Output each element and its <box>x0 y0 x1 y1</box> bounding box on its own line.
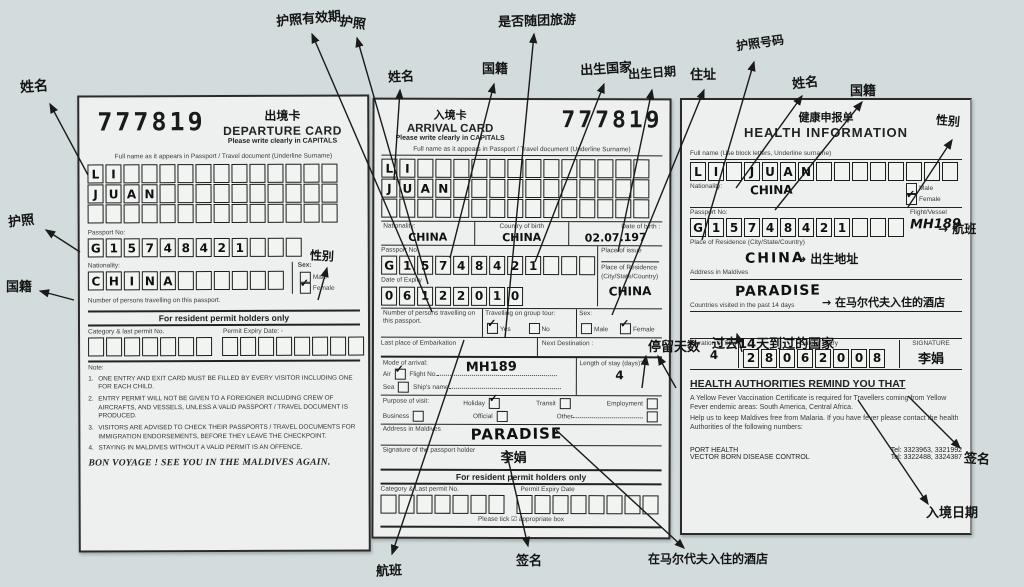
char-box: 1 <box>232 238 248 257</box>
arrival-passport-row: G15748421 <box>381 256 597 276</box>
char-box <box>453 159 469 178</box>
annotation-signature-right: 签名 <box>963 447 990 468</box>
char-box <box>303 164 319 183</box>
departure-name-row2: JUAN <box>88 184 360 204</box>
health-passport-row: G15748421 <box>690 218 906 237</box>
char-box <box>232 184 248 203</box>
char-box: 1 <box>106 239 122 258</box>
char-box: 1 <box>417 286 433 305</box>
char-box <box>268 204 284 223</box>
char-box: N <box>435 179 451 198</box>
arrival-group-tour-label: Travelling on group tour: <box>485 309 574 317</box>
arrival-purpose-label: Purpose of visit: <box>383 397 429 408</box>
char-box <box>870 162 886 181</box>
arrival-card: 入境卡 ARRIVAL CARD Please write clearly in… <box>371 98 671 540</box>
health-card: 健康申报单 HEALTH INFORMATION Full name (Use … <box>680 98 972 535</box>
arrival-birth-date-value: 02.07.197 <box>571 231 660 245</box>
char-box: I <box>399 159 415 178</box>
char-box <box>525 199 541 218</box>
char-box <box>196 184 212 203</box>
char-box <box>489 179 505 198</box>
char-box: 1 <box>834 218 850 237</box>
char-box <box>398 495 414 514</box>
char-box <box>543 256 559 275</box>
char-box <box>507 199 523 218</box>
arrival-next-destination-label: Next Destination : <box>537 338 662 356</box>
char-box <box>588 495 604 514</box>
arrival-business-checkbox <box>413 410 424 421</box>
char-box <box>525 179 541 198</box>
departure-card: 777819 出境卡 DEPARTURE CARD Please write c… <box>77 94 371 552</box>
char-box: 5 <box>124 239 140 258</box>
char-box: G <box>88 239 104 258</box>
departure-permit-expiry-label: Permit Expiry Date: - <box>223 327 283 335</box>
char-box <box>348 336 364 355</box>
char-box <box>268 184 284 203</box>
char-box <box>178 204 194 223</box>
char-box <box>381 199 397 218</box>
arrival-place-issue-label: Place of issue <box>601 247 659 262</box>
char-box <box>304 184 320 203</box>
arrival-permit-expiry-row <box>516 495 660 514</box>
annotation-passport-departure: 护照 <box>7 209 35 231</box>
health-fullname-label: Full name (Use block letters, Underline … <box>690 150 962 160</box>
char-box <box>942 162 958 181</box>
char-box <box>543 179 559 198</box>
arrival-sex-label: Sex: <box>579 310 660 318</box>
char-box <box>294 336 310 355</box>
char-box <box>178 337 194 356</box>
char-box <box>178 271 194 290</box>
char-box <box>142 337 158 356</box>
char-box <box>525 159 541 178</box>
arrival-sea-checkbox <box>398 381 409 392</box>
health-tel2: Tel: 3322488, 3324387 <box>891 454 962 461</box>
arrival-flight-value: MH189 <box>466 359 517 375</box>
departure-passport-label: Passport No: <box>88 229 360 238</box>
char-box: J <box>88 185 104 204</box>
departure-category-label: Category & last permit No. <box>88 328 223 337</box>
health-nationality-value: CHINA <box>750 183 793 198</box>
arrival-resident-header: For resident permit holders only <box>381 468 662 485</box>
char-box <box>222 337 238 356</box>
departure-category-row <box>88 337 214 356</box>
char-box: H <box>106 272 122 291</box>
char-box <box>597 179 613 198</box>
char-box <box>106 337 122 356</box>
departure-persons-label: Number of persons travelling on this pas… <box>88 297 360 306</box>
annotation-nationality-arrival: 国籍 <box>482 58 508 77</box>
char-box <box>196 204 212 223</box>
arrival-expiry-label: Date of Expiry <box>381 277 597 286</box>
annotation-countries-14: 过去14天到过的国家 <box>712 333 834 352</box>
arrival-transit-checkbox <box>560 398 571 409</box>
char-box <box>286 184 302 203</box>
char-box <box>816 162 832 181</box>
char-box: 1 <box>399 256 415 275</box>
char-box: 0 <box>381 286 397 305</box>
char-box <box>322 184 338 203</box>
annotation-group-tour: 是否随团旅游 <box>498 9 577 31</box>
departure-title: DEPARTURE CARD <box>206 124 360 139</box>
annotation-sex-health: 性别 <box>935 111 960 130</box>
char-box <box>250 204 266 223</box>
char-box <box>304 204 320 223</box>
annotation-name-departure: 姓名 <box>19 75 48 97</box>
char-box: I <box>105 164 121 183</box>
departure-subtitle: Please write clearly in CAPITALS <box>206 138 360 146</box>
char-box: 8 <box>780 218 796 237</box>
char-box <box>417 159 433 178</box>
char-box <box>906 162 922 181</box>
health-address-label: Address in Maldives <box>690 269 962 279</box>
char-box <box>177 164 193 183</box>
annotation-sex-departure: 性别 <box>310 246 335 264</box>
char-box <box>250 238 266 257</box>
char-box: 1 <box>525 256 541 275</box>
health-signature-label: SIGNATURE <box>900 340 962 348</box>
char-box <box>267 164 283 183</box>
health-nationality-label: Nationality: <box>690 183 904 191</box>
arrival-name-row2: JUAN <box>381 179 662 199</box>
char-box <box>470 495 486 514</box>
char-box <box>312 336 328 355</box>
char-box <box>452 495 468 514</box>
char-box <box>870 218 886 237</box>
departure-serial-number: 777819 <box>97 107 205 136</box>
departure-female-checkbox: ✓ <box>300 283 311 294</box>
health-tel1: Tel: 3323963, 3321992 <box>891 447 962 454</box>
char-box: 4 <box>798 218 814 237</box>
departure-note-2: 2.ENTRY PERMIT WILL NOT BE GIVEN TO A FO… <box>88 395 360 422</box>
char-box: I <box>708 162 724 181</box>
arrival-category-row <box>380 495 506 514</box>
arrival-title-cn: 入境卡 <box>396 107 505 123</box>
char-box: 2 <box>214 238 230 257</box>
char-box: L <box>381 159 397 178</box>
char-box: U <box>106 184 122 203</box>
health-remind-title: HEALTH AUTHORITIES REMIND YOU THAT <box>690 378 962 390</box>
char-box: 4 <box>196 238 212 257</box>
arrival-embarkation-label: Last place of Embarkation <box>381 337 537 355</box>
char-box: A <box>780 162 796 181</box>
char-box: 0 <box>851 349 867 368</box>
char-box <box>579 159 595 178</box>
char-box: 0 <box>833 349 849 368</box>
char-box: 4 <box>762 218 778 237</box>
departure-fullname-label: Full name as it appears in Passport / Tr… <box>87 153 359 162</box>
arrival-nationality-value: CHINA <box>383 230 472 244</box>
char-box <box>268 238 284 257</box>
char-box: 1 <box>708 218 724 237</box>
char-box <box>507 179 523 198</box>
char-box: 1 <box>489 286 505 305</box>
departure-name-row1: LI <box>87 164 359 184</box>
char-box: 5 <box>417 256 433 275</box>
char-box: 4 <box>160 238 176 257</box>
char-box <box>250 184 266 203</box>
char-box <box>471 199 487 218</box>
char-box <box>852 162 868 181</box>
arrival-group-yes-checkbox: ✓ <box>487 323 498 334</box>
char-box <box>633 199 649 218</box>
char-box <box>435 159 451 178</box>
char-box: G <box>381 256 397 275</box>
departure-male-label: Male <box>313 274 327 281</box>
annotation-signature-bottom: 签名 <box>516 550 542 569</box>
health-port-health: PORT HEALTH <box>690 447 891 454</box>
char-box <box>924 162 940 181</box>
char-box <box>159 164 175 183</box>
char-box <box>453 199 469 218</box>
annotation-entry-date: 入境日期 <box>926 502 978 521</box>
char-box: A <box>417 179 433 198</box>
char-box <box>285 164 301 183</box>
departure-nationality-row: CHINA <box>88 271 292 291</box>
char-box <box>196 337 212 356</box>
arrival-permit-expiry-label: Permit Expiry Date <box>521 486 575 494</box>
char-box <box>488 495 504 514</box>
char-box: 7 <box>142 238 158 257</box>
arrival-stay-value: 4 <box>579 367 659 382</box>
departure-farewell: BON VOYAGE ! SEE YOU IN THE MALDIVES AGA… <box>88 457 360 468</box>
char-box <box>142 204 158 223</box>
departure-resident-header: For resident permit holders only <box>88 309 360 326</box>
char-box <box>561 179 577 198</box>
health-vector-control: VECTOR BORN DISEASE CONTROL <box>690 454 891 461</box>
char-box <box>417 199 433 218</box>
char-box: N <box>142 272 158 291</box>
arrival-title: ARRIVAL CARD <box>395 123 504 135</box>
departure-note-1: 1.ONE ENTRY AND EXIT CARD MUST BE FILLED… <box>88 374 360 392</box>
char-box <box>570 495 586 514</box>
char-box: 4 <box>453 256 469 275</box>
char-box <box>579 179 595 198</box>
char-box <box>214 184 230 203</box>
departure-permit-expiry-row <box>222 336 366 356</box>
annotation-name-health: 姓名 <box>791 71 819 93</box>
char-box <box>88 205 104 224</box>
char-box <box>561 159 577 178</box>
char-box <box>286 238 302 257</box>
char-box <box>516 495 532 514</box>
char-box: 2 <box>507 256 523 275</box>
char-box <box>196 271 212 290</box>
char-box <box>141 164 157 183</box>
char-box <box>471 179 487 198</box>
char-box <box>380 495 396 514</box>
arrival-other-checkbox <box>647 411 658 422</box>
arrival-address-value: PARADISE <box>471 424 563 443</box>
char-box: C <box>88 272 104 291</box>
health-residence-label: Place of Residence (City/State/Country) <box>690 239 962 247</box>
departure-title-cn: 出境卡 <box>206 107 360 125</box>
char-box <box>633 179 649 198</box>
departure-nationality-label: Nationality: <box>88 262 292 271</box>
char-box: G <box>690 218 706 237</box>
arrival-male-checkbox <box>581 324 592 335</box>
scanned-immigration-forms: 777819 出境卡 DEPARTURE CARD Please write c… <box>0 0 1024 587</box>
arrival-passport-label: Passport No: <box>381 247 597 256</box>
annotation-passport-expiry: 护照有效期 <box>275 5 341 30</box>
char-box <box>726 162 742 181</box>
char-box <box>579 199 595 218</box>
annotation-stay-days: 停留天数 <box>648 336 700 355</box>
departure-note-3: 3.VISITORS ARE ADVISED TO CHECK THEIR PA… <box>88 423 360 441</box>
char-box: J <box>381 179 397 198</box>
char-box: 8 <box>178 238 194 257</box>
annotation-passport-top: 护照 <box>339 10 367 32</box>
arrival-air-checkbox: ✓ <box>395 368 406 379</box>
char-box <box>321 164 337 183</box>
char-box <box>240 337 256 356</box>
char-box <box>160 204 176 223</box>
char-box <box>178 184 194 203</box>
char-box: 5 <box>726 218 742 237</box>
char-box <box>214 204 230 223</box>
arrival-expiry-row: 06122010 <box>381 286 597 306</box>
char-box <box>160 184 176 203</box>
char-box: 8 <box>471 256 487 275</box>
char-box <box>232 204 248 223</box>
char-box: J <box>744 162 760 181</box>
arrival-persons-label: Number of persons travelling on this pas… <box>381 308 482 336</box>
annotation-address: 住址 <box>690 64 716 83</box>
char-box <box>543 159 559 178</box>
char-box <box>195 164 211 183</box>
arrival-category-label: Category & Last permit No. <box>381 485 521 493</box>
char-box <box>399 199 415 218</box>
char-box <box>249 164 265 183</box>
char-box <box>214 271 230 290</box>
arrival-residence-value: CHINA <box>601 283 659 298</box>
annotation-hotel-arrow: → 在马尔代夫入住的酒店 <box>822 294 945 310</box>
char-box <box>597 159 613 178</box>
annotation-passport-no: 护照号码 <box>735 31 785 55</box>
char-box <box>453 179 469 198</box>
char-box <box>322 204 338 223</box>
char-box <box>434 495 450 514</box>
annotation-nationality-health: 国籍 <box>850 80 876 99</box>
char-box <box>615 199 631 218</box>
arrival-official-checkbox <box>497 411 508 422</box>
arrival-birth-country-value: CHINA <box>477 231 566 245</box>
char-box <box>624 495 640 514</box>
health-title-cn: 健康申报单 <box>690 109 962 125</box>
annotation-flight-bottom: 航班 <box>376 559 403 579</box>
char-box <box>561 199 577 218</box>
arrival-tick-note: Please tick ☑ appropriate box <box>380 516 661 529</box>
annotation-birth-address-arrow: → 出生地址 <box>796 250 858 267</box>
health-remind-p1: A Yellow Fever Vaccination Certificate i… <box>690 395 962 413</box>
annotation-birth-date: 出生日期 <box>627 62 676 82</box>
annotation-flight-arrow: → 航班 <box>938 220 976 237</box>
char-box <box>615 179 631 198</box>
char-box <box>268 271 284 290</box>
departure-note-label: Note: <box>88 363 360 372</box>
arrival-name-row1: LI <box>381 159 662 179</box>
health-female-checkbox: ✓ <box>906 194 917 205</box>
char-box: A <box>124 184 140 203</box>
arrival-holiday-checkbox: ✓ <box>489 398 500 409</box>
char-box <box>552 495 568 514</box>
char-box <box>276 336 292 355</box>
char-box <box>435 199 451 218</box>
char-box: I <box>124 272 140 291</box>
arrival-group-no-checkbox <box>528 323 539 334</box>
departure-female-label: Female <box>313 285 335 292</box>
char-box: 6 <box>399 286 415 305</box>
char-box <box>231 164 247 183</box>
char-box: N <box>142 184 158 203</box>
char-box <box>633 159 649 178</box>
health-remind-p2: Help us to keep Maldives free from Malar… <box>690 415 962 433</box>
char-box <box>507 159 523 178</box>
char-box <box>213 164 229 183</box>
arrival-employment-checkbox <box>647 398 658 409</box>
char-box <box>106 204 122 223</box>
char-box: N <box>798 162 814 181</box>
char-box: 7 <box>435 256 451 275</box>
char-box <box>471 159 487 178</box>
arrival-signature-value: 李娟 <box>500 447 526 466</box>
health-passport-label: Passport No: <box>690 209 906 217</box>
char-box <box>160 337 176 356</box>
char-box <box>642 495 658 514</box>
char-box <box>286 204 302 223</box>
char-box <box>330 336 346 355</box>
char-box <box>489 199 505 218</box>
arrival-fullname-label: Full name as it appears in Passport / Tr… <box>381 146 662 157</box>
char-box <box>416 495 432 514</box>
char-box <box>124 337 140 356</box>
char-box <box>606 495 622 514</box>
char-box <box>561 256 577 275</box>
char-box <box>232 271 248 290</box>
arrival-female-checkbox: ✓ <box>620 324 631 335</box>
char-box: U <box>762 162 778 181</box>
char-box <box>852 218 868 237</box>
annotation-birth-country: 出生国家 <box>579 56 632 79</box>
char-box: 2 <box>816 218 832 237</box>
char-box: 2 <box>453 286 469 305</box>
char-box <box>250 271 266 290</box>
char-box <box>543 199 559 218</box>
char-box <box>123 164 139 183</box>
annotation-nationality-departure: 国籍 <box>6 276 32 295</box>
arrival-subtitle: Please write clearly in CAPITALS <box>395 135 504 142</box>
departure-name-row3 <box>88 204 360 224</box>
char-box <box>534 495 550 514</box>
char-box <box>834 162 850 181</box>
char-box: L <box>87 165 103 184</box>
char-box: 0 <box>471 286 487 305</box>
char-box: A <box>160 272 176 291</box>
arrival-name-row3 <box>381 199 662 219</box>
char-box: U <box>399 179 415 198</box>
char-box <box>888 162 904 181</box>
char-box <box>88 337 104 356</box>
health-name-row: LIJUAN <box>690 162 962 181</box>
arrival-serial-number: 777819 <box>561 107 662 133</box>
char-box <box>615 159 631 178</box>
annotation-hotel-bottom: 在马尔代夫入住的酒店 <box>648 550 768 567</box>
char-box: 4 <box>489 256 505 275</box>
annotation-name-arrival: 姓名 <box>388 65 415 85</box>
char-box: 7 <box>744 218 760 237</box>
char-box: 0 <box>507 286 523 305</box>
char-box <box>579 257 595 276</box>
